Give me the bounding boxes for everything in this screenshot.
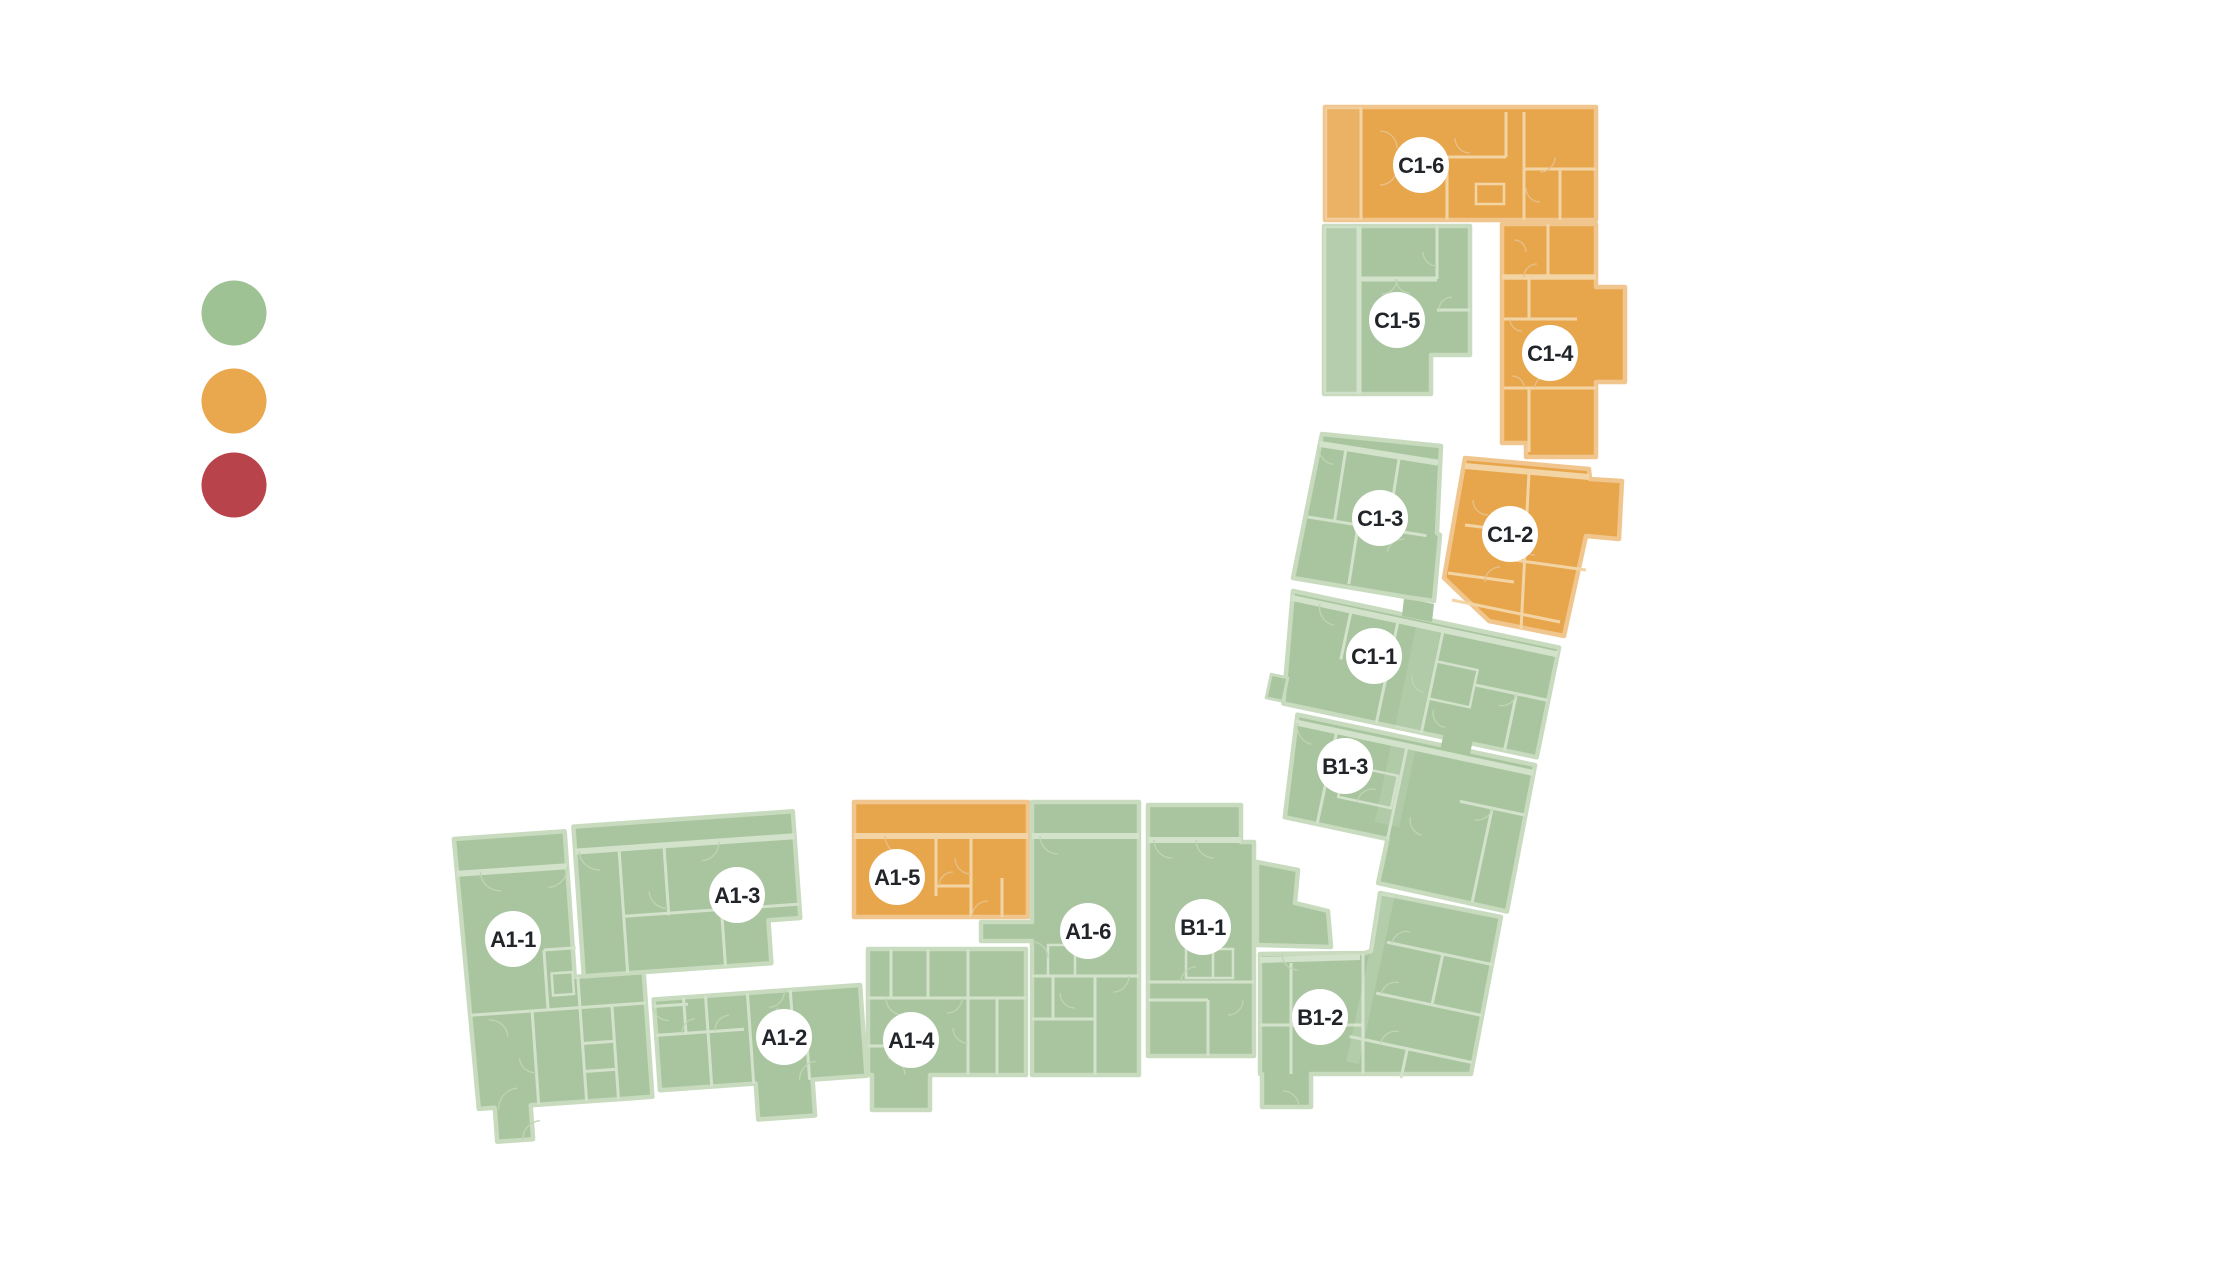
svg-text:A1-1: A1-1 xyxy=(490,927,536,952)
svg-text:A1-5: A1-5 xyxy=(874,865,920,890)
svg-text:B1-3: B1-3 xyxy=(1322,754,1368,779)
svg-text:A1-2: A1-2 xyxy=(761,1025,807,1050)
svg-text:C1-2: C1-2 xyxy=(1487,522,1533,547)
svg-text:A1-4: A1-4 xyxy=(888,1028,935,1053)
svg-text:C1-5: C1-5 xyxy=(1374,308,1420,333)
svg-text:C1-6: C1-6 xyxy=(1398,153,1444,178)
svg-text:A1-3: A1-3 xyxy=(714,883,760,908)
svg-text:C1-4: C1-4 xyxy=(1527,341,1574,366)
svg-text:A1-6: A1-6 xyxy=(1065,919,1111,944)
svg-text:B1-1: B1-1 xyxy=(1180,915,1226,940)
svg-text:C1-1: C1-1 xyxy=(1351,644,1397,669)
svg-text:C1-3: C1-3 xyxy=(1357,506,1403,531)
svg-text:B1-2: B1-2 xyxy=(1297,1005,1343,1030)
